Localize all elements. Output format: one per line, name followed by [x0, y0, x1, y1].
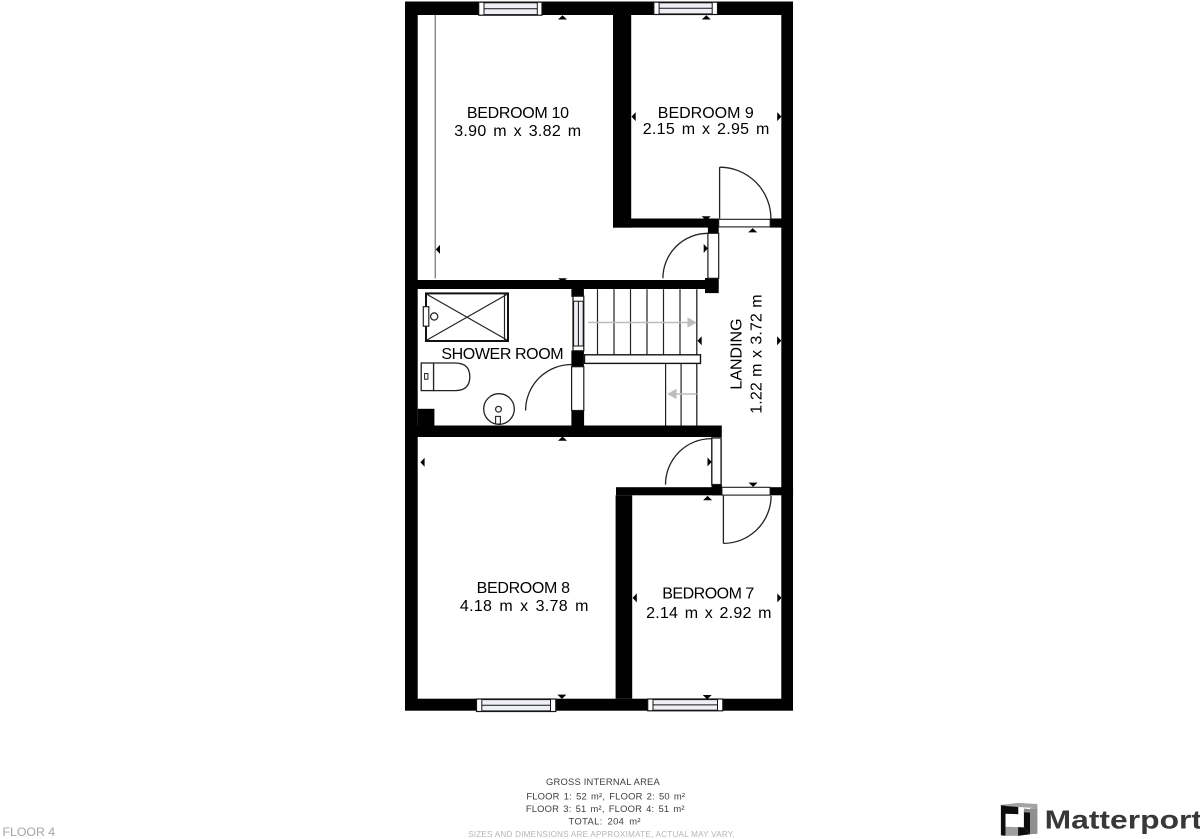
svg-text:BEDROOM 9: BEDROOM 9: [658, 105, 754, 122]
svg-text:TOTAL: 204 m²: TOTAL: 204 m²: [569, 816, 641, 827]
svg-text:BEDROOM 10: BEDROOM 10: [467, 105, 569, 122]
svg-text:BEDROOM 7: BEDROOM 7: [662, 586, 754, 603]
svg-text:3.90 m x 3.82 m: 3.90 m x 3.82 m: [454, 123, 581, 140]
svg-text:SIZES AND DIMENSIONS ARE APPRO: SIZES AND DIMENSIONS ARE APPROXIMATE, AC…: [468, 830, 735, 839]
svg-text:2.15 m x 2.95 m: 2.15 m x 2.95 m: [643, 121, 770, 138]
svg-text:FLOOR 3: 51 m², FLOOR 4: 51 m²: FLOOR 3: 51 m², FLOOR 4: 51 m²: [526, 803, 685, 814]
svg-text:Matterport: Matterport: [1045, 806, 1200, 835]
svg-text:BEDROOM 8: BEDROOM 8: [477, 580, 571, 597]
svg-text:2.14 m x 2.92 m: 2.14 m x 2.92 m: [646, 605, 772, 622]
svg-text:1.22 m x 3.72 m: 1.22 m x 3.72 m: [749, 294, 766, 413]
svg-text:GROSS INTERNAL AREA: GROSS INTERNAL AREA: [546, 776, 660, 787]
svg-text:SHOWER ROOM: SHOWER ROOM: [441, 346, 563, 363]
svg-text:4.18 m x 3.78 m: 4.18 m x 3.78 m: [460, 598, 589, 615]
svg-text:FLOOR 4: FLOOR 4: [3, 825, 56, 839]
svg-text:FLOOR 1: 52 m², FLOOR 2: 50 m²: FLOOR 1: 52 m², FLOOR 2: 50 m²: [526, 791, 685, 802]
svg-text:LANDING: LANDING: [729, 318, 746, 389]
